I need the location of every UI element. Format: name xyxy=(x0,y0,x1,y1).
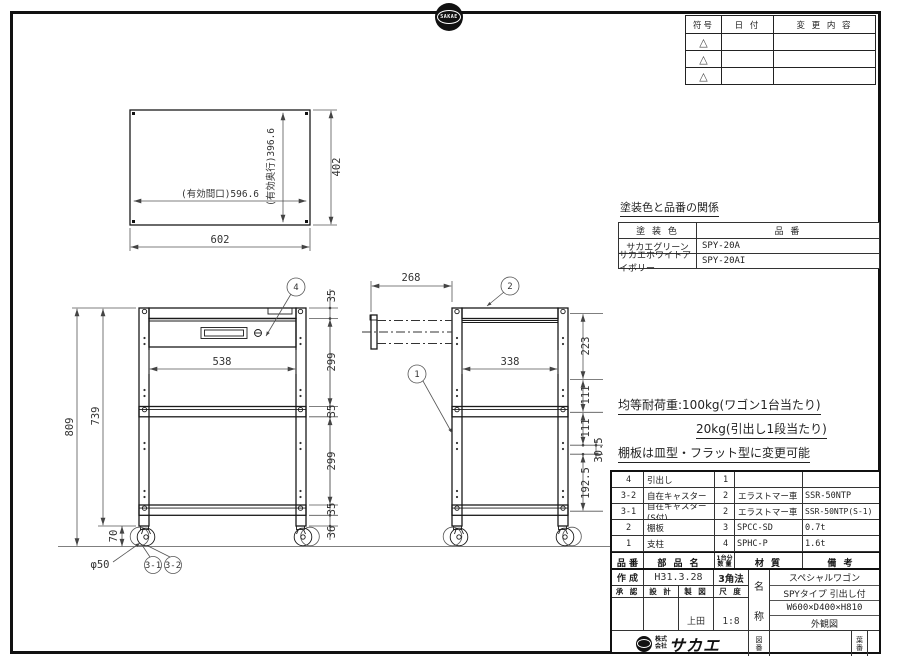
part-qty: 3 xyxy=(715,520,735,536)
dim-top-width: 602 xyxy=(211,234,230,246)
part-name: 支柱 xyxy=(644,536,715,552)
part-name: 自在キャスター xyxy=(644,488,715,504)
part-remarks: 1.6t xyxy=(803,536,879,552)
dim-front-shelf1: 35 xyxy=(326,405,338,418)
part-no: 2 xyxy=(612,520,644,536)
part-material xyxy=(735,472,803,488)
sheet-no-value xyxy=(868,631,879,656)
revision-triangle-icon: △ xyxy=(699,71,707,82)
caster-front-right xyxy=(294,526,319,546)
part-number: SPY-20AI xyxy=(697,253,879,268)
part-number: SPY-20A xyxy=(697,238,879,253)
revision-table: 符号 日 付 変 更 内 容 △ △ △ xyxy=(685,15,876,85)
dim-front-seg1: 299 xyxy=(326,353,338,372)
approved-label: 承 認 xyxy=(612,586,644,598)
sheet-no-label: 葉番 xyxy=(855,636,865,652)
dim-top-effective-width: (有効間口)596.6 xyxy=(181,188,259,200)
top-view: 602 402 (有効間口)596.6 (有効奥行)396.6 xyxy=(130,110,343,251)
sakae-logo-text: SAKAE xyxy=(440,14,458,20)
title-block: 作 成 H31.3.28 3角法 承 認 設 計 製 図 尺 度 上田 1:8 … xyxy=(610,568,881,654)
revision-row: △ xyxy=(686,33,875,50)
drawing-no-label: 図番 xyxy=(754,636,764,652)
part-material: エラストマー車 xyxy=(735,488,803,504)
part-qty: 1 xyxy=(715,472,735,488)
revision-col-date: 日 付 xyxy=(722,16,774,33)
part-name: 棚板 xyxy=(644,520,715,536)
part-remarks: SSR-50NTP(S-1) xyxy=(803,504,879,520)
name-label-top: 名 xyxy=(754,578,764,593)
revision-col-change: 変 更 内 容 xyxy=(774,16,875,33)
balloon-3-2: 3-2 xyxy=(165,561,181,571)
color-table-col-color: 塗 装 色 xyxy=(619,223,697,238)
dim-caster-dia: φ50 xyxy=(91,559,110,571)
balloon-3-1: 3-1 xyxy=(145,561,161,571)
drawing-no-label-cell: 図番 xyxy=(749,631,770,656)
part-qty: 2 xyxy=(715,488,735,504)
product-size: W600×D400×H810 xyxy=(770,601,879,616)
part-remarks: SSR-50NTP xyxy=(803,488,879,504)
revision-triangle-icon: △ xyxy=(699,37,707,48)
design-label: 設 計 xyxy=(644,586,679,598)
dim-front-inner-width: 538 xyxy=(213,356,232,368)
parts-row: 3-1 自在キャスター(S付) 2 エラストマー車 SSR-50NTP(S-1) xyxy=(612,504,879,520)
sakae-logo-icon: SAKAE xyxy=(435,3,463,31)
dim-front-post-height: 739 xyxy=(90,407,102,426)
parts-row: 4 引出し 1 xyxy=(612,472,879,488)
dim-side-30-5: 30.5 xyxy=(593,437,605,462)
caster-side-left xyxy=(443,526,468,546)
created-label: 作 成 xyxy=(612,570,644,586)
created-date: H31.3.28 xyxy=(644,570,714,586)
dim-drawer-extension: 268 xyxy=(402,272,421,284)
scale-label: 尺 度 xyxy=(714,586,749,598)
sakae-logo-icon xyxy=(636,636,652,652)
dim-side-223: 223 xyxy=(580,337,592,356)
drafter-name: 上田 xyxy=(679,598,714,631)
part-qty: 2 xyxy=(715,504,735,520)
part-material: エラストマー車 xyxy=(735,504,803,520)
revision-row: △ xyxy=(686,50,875,67)
parts-row: 3-2 自在キャスター 2 エラストマー車 SSR-50NTP xyxy=(612,488,879,504)
dim-front-shelf2: 35 xyxy=(326,503,338,516)
side-view: 268 338 223 111 111 30.5 192.5 xyxy=(362,272,605,546)
product-name: スペシャルワゴン xyxy=(770,570,879,586)
dim-front-caster-height: 70 xyxy=(108,530,120,543)
dim-top-depth: 402 xyxy=(331,158,343,177)
part-remarks: 0.7t xyxy=(803,520,879,536)
revision-triangle-icon: △ xyxy=(699,54,707,65)
dim-front-overall-height: 809 xyxy=(64,418,76,437)
name-label-bottom: 称 xyxy=(754,608,764,623)
revision-col-symbol: 符号 xyxy=(686,16,722,33)
company-prefix: 株式会社 xyxy=(655,637,669,650)
part-no: 3-2 xyxy=(612,488,644,504)
company-name: サカエ xyxy=(669,632,720,656)
dim-top-effective-depth: (有効奥行)396.6 xyxy=(265,128,277,206)
balloon-1: 1 xyxy=(414,370,419,380)
dim-side-192-5: 192.5 xyxy=(580,467,592,499)
note-shelf-type: 棚板は皿型・フラット型に変更可能 xyxy=(618,444,810,463)
caster-side-right xyxy=(556,526,581,546)
dim-front-seg2: 299 xyxy=(326,452,338,471)
color-name: サカエホワイトアイボリー xyxy=(619,253,697,268)
product-type: SPYタイプ 引出し付 xyxy=(770,586,879,601)
parts-table: 4 引出し 1 3-2 自在キャスター 2 エラストマー車 SSR-50NTP … xyxy=(610,470,881,571)
dim-side-inner-depth: 338 xyxy=(501,356,520,368)
color-table-row: サカエホワイトアイボリー SPY-20AI xyxy=(619,253,879,268)
part-no: 1 xyxy=(612,536,644,552)
dim-front-bottom: 36 xyxy=(326,526,338,539)
dim-front-top-rail: 35 xyxy=(326,290,338,303)
balloon-2: 2 xyxy=(507,282,512,292)
dim-side-111b: 111 xyxy=(580,419,592,438)
part-remarks xyxy=(803,472,879,488)
note-load-capacity: 均等耐荷重:100kg(ワゴン1台当たり) xyxy=(618,396,821,415)
draft-label: 製 図 xyxy=(679,586,714,598)
part-no: 4 xyxy=(612,472,644,488)
part-name: 自在キャスター(S付) xyxy=(644,504,715,520)
note-drawer-capacity: 20kg(引出し1段当たり) xyxy=(696,420,827,439)
color-table: 塗 装 色 品 番 サカエグリーン SPY-20A サカエホワイトアイボリー S… xyxy=(618,222,880,269)
balloon-4: 4 xyxy=(293,283,298,293)
name-column: 名 称 xyxy=(749,570,770,631)
part-qty: 4 xyxy=(715,536,735,552)
company-logo: 株式会社 サカエ xyxy=(612,631,749,656)
caster-front-left xyxy=(130,526,155,546)
approved-signature xyxy=(612,598,644,631)
revision-row: △ xyxy=(686,67,875,84)
design-signature xyxy=(644,598,679,631)
projection-method: 3角法 xyxy=(714,570,749,586)
part-no: 3-1 xyxy=(612,504,644,520)
part-material: SPCC-SD xyxy=(735,520,803,536)
scale-value: 1:8 xyxy=(714,598,749,631)
drawing-type: 外観図 xyxy=(770,616,879,631)
part-name: 引出し xyxy=(644,472,715,488)
part-material: SPHC-P xyxy=(735,536,803,552)
drawing-no-value xyxy=(770,631,852,656)
color-table-title: 塗装色と品番の関係 xyxy=(620,199,719,217)
color-table-col-part: 品 番 xyxy=(697,223,879,238)
dim-side-111a: 111 xyxy=(580,386,592,405)
sheet-no-label-cell: 葉番 xyxy=(852,631,868,656)
parts-row: 2 棚板 3 SPCC-SD 0.7t xyxy=(612,520,879,536)
parts-row: 1 支柱 4 SPHC-P 1.6t xyxy=(612,536,879,552)
